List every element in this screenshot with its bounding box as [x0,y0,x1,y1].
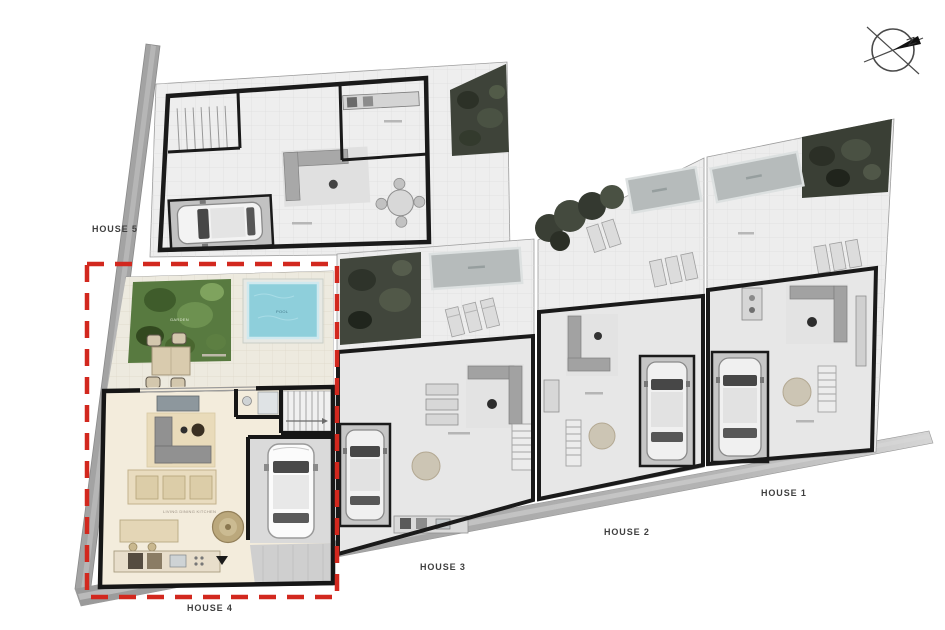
stairs-icon [512,424,532,470]
round-rug [589,423,615,449]
car-icon [644,362,690,460]
car-icon [343,430,387,520]
house-3-pool [430,248,522,289]
house-3-label: HOUSE 3 [420,562,466,572]
house-3-garden [340,252,421,345]
stairs-icon [283,391,331,431]
sofa-icon [568,358,610,371]
house-5-label: HOUSE 5 [92,224,138,234]
house-1-garden [802,119,892,198]
sofa-icon [284,152,300,201]
label-smudge [448,432,470,435]
plant-icon [487,399,497,409]
house-5-plan [150,62,510,257]
house-1-label: HOUSE 1 [761,488,807,498]
sofa-icon [790,286,834,299]
decor-icon [181,427,188,434]
tv-unit-icon [157,396,199,411]
house-2-label: HOUSE 2 [604,527,650,537]
compass-north-label: N [903,35,919,48]
house-4-plan: GARDEN POOL [100,271,333,588]
house-4-pool: POOL [243,279,323,343]
sofa-icon [155,446,211,463]
round-rug [783,378,811,406]
house-2-plan [535,158,704,501]
decor-icon [749,307,755,313]
pool-label: POOL [276,309,289,314]
round-rug [412,452,440,480]
sideboard-icon [856,296,866,366]
house-1-plan [707,119,894,466]
label-smudge [738,232,754,235]
appliance-icon [347,97,358,108]
coffee-table-icon [594,332,602,340]
wardrobe-icon [544,380,559,412]
label-smudge [202,354,226,357]
dining-set-icon [128,470,216,504]
label-smudge [384,120,402,123]
stool-icon [129,543,137,551]
label-smudge [585,392,603,395]
stairs-icon [566,420,581,466]
house-4-label: HOUSE 4 [187,603,233,613]
stairs-icon [818,366,836,412]
compass-icon: N [864,27,923,74]
car-icon [716,358,764,456]
entry-table-icon [213,512,244,543]
kitchen-counter [394,516,468,533]
stool-icon [148,543,156,551]
decor-icon [749,295,755,301]
site-plan-drawing: GARDEN POOL [0,0,945,630]
wardrobe-icon [426,384,458,425]
garden-label: GARDEN [170,317,189,322]
sofa-icon [834,286,847,342]
sink-icon [243,397,252,406]
sofa-icon [509,366,522,424]
label-smudge [292,222,312,225]
car-icon [264,444,318,538]
coffee-table-icon [192,424,205,437]
house-5-garage [169,195,273,250]
site-plan-canvas: GARDEN POOL [0,0,945,630]
living-room-label: LIVING DINING KITCHEN [163,509,216,514]
appliance-icon [147,553,162,569]
house-3-plan [337,239,534,556]
appliance-icon [128,553,143,569]
sink-icon [170,555,186,567]
label-smudge [796,420,814,423]
house-4-driveway [250,543,333,585]
kitchen-island [120,520,178,542]
appliance-icon [363,96,374,107]
plant-icon [807,317,817,327]
sofa-icon [468,366,514,379]
side-table-icon [742,288,762,320]
